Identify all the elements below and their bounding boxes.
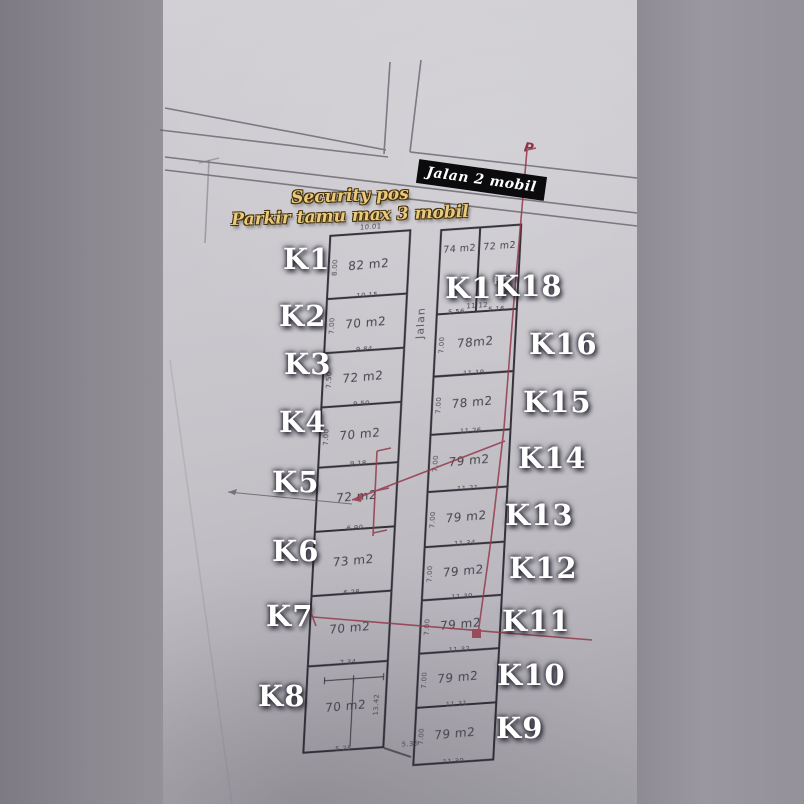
plot-label-K11: K11 <box>502 604 571 638</box>
red-parking-mark: P <box>523 140 535 156</box>
plot-label-K3: K3 <box>284 347 331 381</box>
plot-label-K8: K8 <box>258 679 305 713</box>
plot-label-K9: K9 <box>496 711 543 745</box>
plot-label-K18: K18 <box>494 269 563 303</box>
plot-label-K6: K6 <box>272 534 319 568</box>
road-lines <box>160 60 637 804</box>
plot-label-K14: K14 <box>518 441 587 475</box>
plot-label-K4: K4 <box>279 405 326 439</box>
plot-label-K1: K1 <box>283 242 330 276</box>
plot-label-K7: K7 <box>266 599 313 633</box>
plot-label-K2: K2 <box>279 299 326 333</box>
plot-label-K13: K13 <box>505 498 574 532</box>
plot-label-K10: K10 <box>497 658 566 692</box>
plot-label-K5: K5 <box>272 465 319 499</box>
plot-label-K15: K15 <box>523 385 592 419</box>
plot-label-K16: K16 <box>529 327 598 361</box>
plot-label-K12: K12 <box>509 551 578 585</box>
plan-annotations-svg <box>0 0 804 804</box>
site-plan-photo: Jalan 82 m210.0110.158.0070 m29.847.0072… <box>0 0 804 804</box>
